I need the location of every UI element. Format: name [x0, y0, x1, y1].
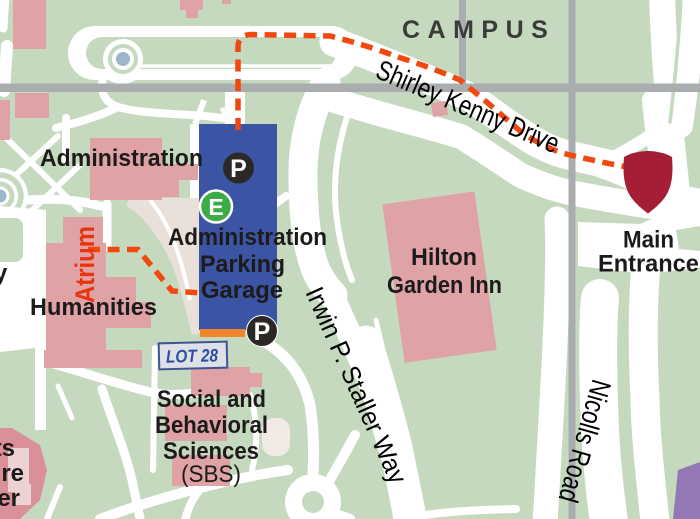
svg-text:Humanities: Humanities: [30, 294, 157, 321]
svg-text:Administration: Administration: [168, 224, 327, 251]
svg-text:LOT 28: LOT 28: [166, 345, 219, 366]
svg-text:er: er: [0, 485, 20, 512]
svg-text:P: P: [254, 318, 271, 346]
svg-text:Entrances: Entrances: [598, 251, 700, 278]
svg-text:Hilton: Hilton: [411, 244, 477, 271]
svg-text:y: y: [0, 260, 8, 287]
svg-text:Garage: Garage: [201, 277, 283, 304]
svg-text:Main: Main: [623, 227, 674, 254]
svg-text:CAMPUS: CAMPUS: [402, 16, 555, 44]
svg-text:re: re: [1, 460, 24, 487]
svg-text:Garden Inn: Garden Inn: [387, 272, 502, 299]
svg-text:Parking: Parking: [200, 251, 285, 278]
svg-text:ts: ts: [0, 435, 15, 462]
svg-text:(SBS): (SBS): [181, 461, 241, 488]
svg-text:P: P: [230, 155, 247, 183]
svg-text:E: E: [208, 194, 223, 220]
svg-text:Behavioral: Behavioral: [155, 412, 268, 439]
svg-text:Atrium: Atrium: [70, 226, 100, 303]
svg-text:Social and: Social and: [157, 386, 266, 413]
svg-text:Administration: Administration: [40, 145, 203, 172]
